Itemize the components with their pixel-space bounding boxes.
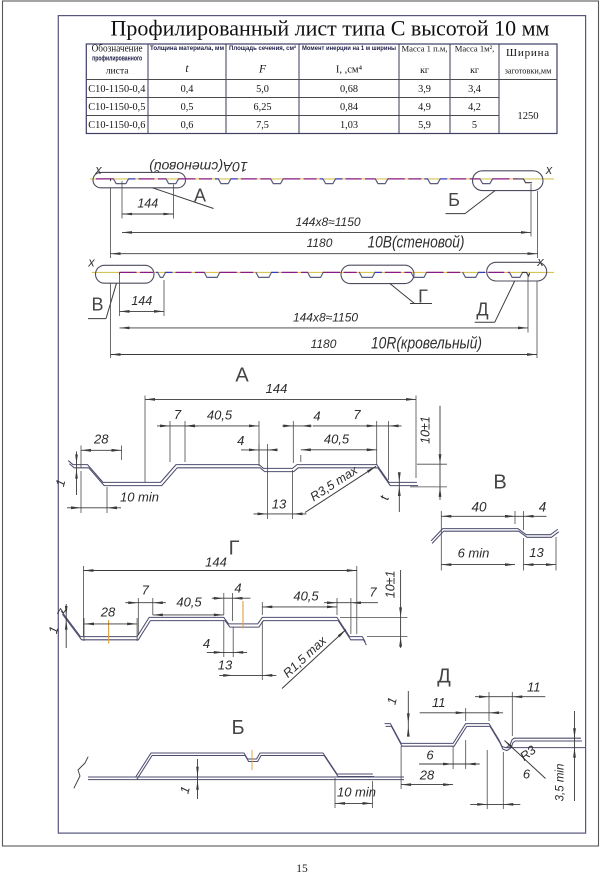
svg-text:4,2: 4,2 (468, 102, 481, 113)
svg-text:F: F (258, 64, 267, 76)
svg-text:Г: Г (418, 287, 428, 307)
svg-text:144: 144 (266, 381, 288, 396)
svg-text:кг: кг (420, 65, 429, 76)
svg-text:x: x (545, 163, 553, 177)
svg-text:40,5: 40,5 (324, 432, 350, 447)
svg-text:4: 4 (313, 409, 320, 424)
svg-text:144x8≈1150: 144x8≈1150 (295, 215, 360, 229)
svg-text:6: 6 (523, 767, 531, 782)
svg-text:Момент инерции на 1 м ширины: Момент инерции на 1 м ширины (302, 45, 396, 52)
svg-text:x: x (94, 163, 102, 177)
svg-text:7,5: 7,5 (256, 120, 269, 131)
svg-text:40,5: 40,5 (176, 595, 202, 610)
svg-text:28: 28 (93, 432, 109, 447)
svg-text:10±1: 10±1 (384, 571, 398, 599)
svg-text:11: 11 (432, 695, 446, 710)
svg-text:13: 13 (218, 658, 233, 673)
svg-text:кг: кг (470, 65, 479, 76)
svg-text:1,03: 1,03 (340, 120, 358, 131)
svg-text:В: В (493, 472, 506, 494)
svg-text:40,5: 40,5 (293, 589, 319, 604)
svg-text:4,9: 4,9 (418, 102, 431, 113)
svg-text:Д: Д (437, 666, 451, 688)
svg-text:144: 144 (137, 197, 158, 211)
svg-text:28: 28 (100, 605, 116, 620)
svg-text:7: 7 (353, 407, 361, 422)
svg-text:0,5: 0,5 (181, 102, 194, 113)
svg-text:144: 144 (131, 294, 152, 308)
svg-text:листа: листа (106, 66, 129, 77)
svg-text:6,25: 6,25 (253, 102, 271, 113)
svg-text:1180: 1180 (311, 337, 337, 351)
svg-text:А: А (235, 365, 249, 387)
svg-text:0,6: 0,6 (181, 120, 194, 131)
svg-text:Д: Д (476, 300, 488, 320)
svg-text:Г: Г (229, 538, 240, 560)
svg-text:15: 15 (296, 863, 308, 875)
svg-text:С10-1150-0,6: С10-1150-0,6 (88, 120, 145, 131)
svg-text:3,5 min: 3,5 min (555, 764, 567, 802)
svg-text:11: 11 (527, 680, 541, 695)
svg-text:28: 28 (419, 768, 435, 783)
svg-text:5,9: 5,9 (418, 120, 431, 131)
svg-text:Б: Б (448, 190, 460, 210)
svg-text:7: 7 (174, 407, 182, 422)
svg-text:Ширина: Ширина (506, 47, 550, 59)
svg-text:4: 4 (234, 581, 241, 596)
svg-text:А: А (194, 186, 206, 206)
svg-text:0,4: 0,4 (181, 84, 194, 95)
svg-text:Площадь сечения, см²: Площадь сечения, см² (229, 45, 296, 52)
svg-text:13: 13 (272, 497, 287, 512)
svg-text:5: 5 (472, 120, 477, 131)
svg-text:6: 6 (426, 748, 434, 763)
svg-text:0,68: 0,68 (340, 84, 358, 95)
svg-text:I, ,см⁴: I, ,см⁴ (336, 65, 363, 76)
svg-text:7: 7 (369, 585, 377, 600)
svg-text:профилированного: профилированного (92, 56, 142, 63)
svg-text:4: 4 (237, 433, 244, 448)
svg-text:10 min: 10 min (120, 490, 159, 505)
svg-text:0,84: 0,84 (340, 102, 358, 113)
svg-text:10 min: 10 min (337, 784, 376, 799)
svg-text:1250: 1250 (517, 111, 538, 122)
svg-text:10А(стеновой): 10А(стеновой) (149, 159, 248, 175)
svg-text:заготовки,мм: заготовки,мм (505, 67, 553, 76)
svg-text:40,5: 40,5 (207, 408, 233, 423)
svg-text:7: 7 (142, 583, 150, 598)
svg-text:10±1: 10±1 (419, 416, 433, 444)
svg-text:1180: 1180 (307, 236, 333, 250)
svg-text:Масса 1 п.м,: Масса 1 п.м, (402, 44, 448, 54)
svg-text:10В(стеновой): 10В(стеновой) (368, 234, 465, 252)
svg-text:6 min: 6 min (458, 546, 490, 561)
svg-text:5,0: 5,0 (256, 84, 269, 95)
svg-text:Б: Б (231, 717, 244, 739)
svg-text:С10-1150-0,4: С10-1150-0,4 (88, 84, 145, 95)
svg-text:13: 13 (529, 545, 544, 560)
svg-text:144: 144 (205, 555, 227, 570)
svg-text:x: x (87, 256, 95, 270)
svg-text:144x8≈1150: 144x8≈1150 (293, 310, 358, 324)
svg-text:Обозначение: Обозначение (92, 44, 143, 55)
svg-text:4: 4 (203, 636, 210, 651)
svg-text:В: В (91, 295, 103, 315)
svg-text:Толщина материала, мм: Толщина материала, мм (150, 45, 224, 52)
svg-text:Масса 1м²,: Масса 1м², (455, 44, 495, 54)
svg-text:С10-1150-0,5: С10-1150-0,5 (88, 102, 145, 113)
svg-text:10R(кровельный): 10R(кровельный) (371, 335, 482, 353)
svg-text:3,4: 3,4 (468, 84, 481, 95)
svg-text:4: 4 (539, 500, 547, 515)
svg-text:Профилированный лист типа С вы: Профилированный лист типа С высотой 10 м… (111, 15, 550, 40)
svg-text:3,9: 3,9 (418, 84, 431, 95)
svg-text:x: x (536, 255, 544, 269)
svg-text:40: 40 (471, 500, 487, 515)
